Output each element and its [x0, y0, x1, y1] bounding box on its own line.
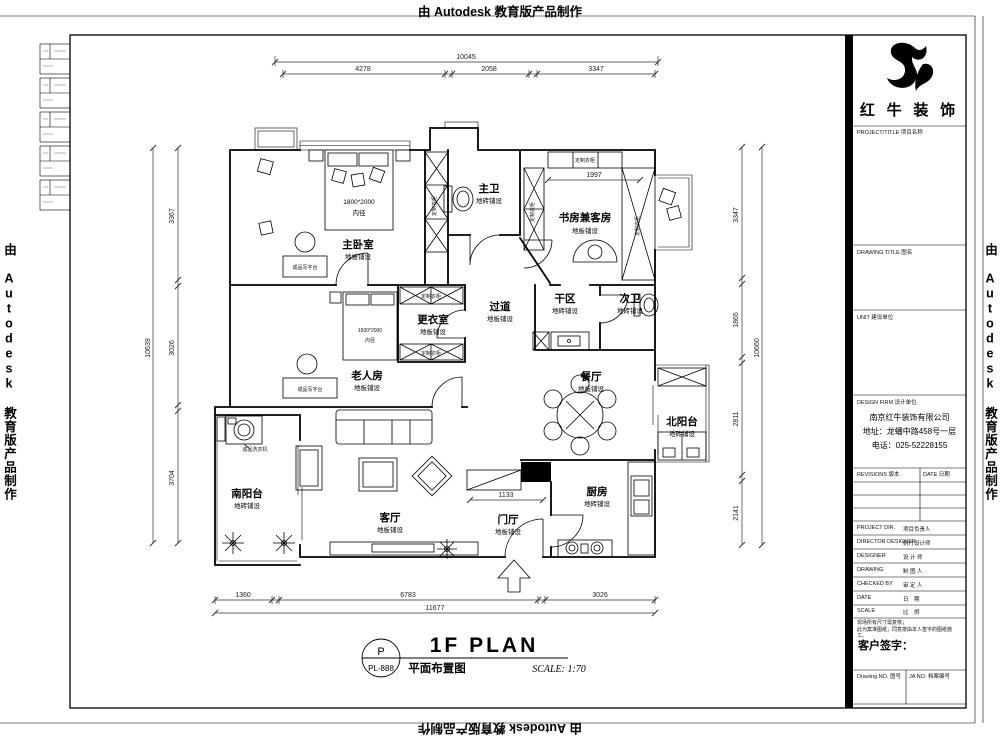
- svg-text:地砖铺设: 地砖铺设: [617, 306, 644, 315]
- room-label-corridor: 过道: [490, 300, 511, 313]
- svg-text:地板铺设: 地板铺设: [377, 525, 404, 534]
- svg-text:1360: 1360: [235, 592, 251, 599]
- room-label-dry-area: 干区: [555, 293, 576, 305]
- svg-text:地板铺设: 地板铺设: [487, 314, 514, 323]
- armchair: [412, 456, 452, 496]
- svg-text:3704: 3704: [169, 470, 176, 486]
- design-firm-label: DESIGN FIRM 设计单位: [857, 398, 917, 406]
- title-stamp: P PL-888 1F PLAN 平面布置图 SCALE: 1:70: [362, 634, 586, 677]
- svg-text:地板铺设: 地板铺设: [420, 327, 447, 336]
- room-label-master-bedroom: 主卧室: [342, 238, 374, 251]
- wardrobe-label: 定制衣柜: [421, 293, 441, 300]
- stamp-letter: P: [377, 646, 384, 658]
- plant: [437, 539, 457, 559]
- company-address: 地址：龙蟠中路458号一层: [853, 425, 966, 439]
- svg-text:6783: 6783: [400, 592, 416, 599]
- svg-text:10639: 10639: [145, 338, 152, 358]
- drawing-title-label: DRAWING TITLE 图名: [857, 248, 912, 256]
- svg-text:1997: 1997: [586, 172, 602, 179]
- svg-text:地板铺设: 地板铺设: [495, 527, 522, 536]
- sheet-linework: 主卧室 地板铺设 主卫 地砖铺设 书房兼客房 地板铺设 次卫 地砖铺设 干区 地…: [0, 0, 1000, 740]
- svg-text:内径: 内径: [365, 337, 375, 344]
- washer-label: 成品洗衣机: [242, 446, 267, 453]
- svg-text:地板铺设: 地板铺设: [345, 252, 372, 261]
- wardrobe-label: 定制衣柜: [529, 202, 536, 222]
- room-label-study: 书房兼客房: [559, 211, 612, 224]
- side-table: [296, 446, 322, 490]
- floor-plan: 主卧室 地板铺设 主卫 地砖铺设 书房兼客房 地板铺设 次卫 地砖铺设 干区 地…: [145, 54, 765, 616]
- plant: [273, 532, 295, 554]
- flue-shaft: [521, 462, 551, 482]
- room-label-dining: 餐厅: [580, 370, 602, 383]
- room-label-master-bath: 主卫: [479, 182, 500, 195]
- wardrobe-label: 定制衣柜: [421, 350, 441, 357]
- master-bed: [309, 150, 410, 230]
- company-info: 南京红牛装饰有限公司 地址：龙蟠中路458号一层 电话：025-52228155: [853, 411, 966, 453]
- staff-row: SCALE比 例: [857, 608, 963, 614]
- svg-text:10660: 10660: [754, 338, 761, 358]
- foyer-cabinet: [467, 470, 521, 490]
- svg-text:2141: 2141: [733, 505, 740, 521]
- client-signature-label: 客户签字：: [858, 637, 913, 653]
- desk-label: 成品写字台: [292, 264, 317, 271]
- kitchen-fixtures: [558, 462, 655, 557]
- svg-text:地砖铺设: 地砖铺设: [552, 306, 579, 315]
- staff-row: PROJECT DIR.项目负责人: [857, 525, 963, 531]
- svg-text:地板铺设: 地板铺设: [354, 383, 381, 392]
- room-label-foyer: 门厅: [498, 513, 519, 526]
- svg-text:地砖铺设: 地砖铺设: [669, 429, 696, 438]
- sheet-title-zh: 平面布置图: [408, 661, 466, 675]
- company-name: 南京红牛装饰有限公司: [853, 411, 966, 425]
- coffee-table: [359, 458, 397, 491]
- svg-text:2811: 2811: [733, 411, 740, 426]
- wardrobe-label: 定制衣柜: [575, 157, 595, 164]
- staff-row: DESIGNER设 计 师: [857, 553, 963, 559]
- svg-text:11677: 11677: [426, 605, 445, 612]
- room-label-second-bath: 次卫: [620, 292, 641, 305]
- staff-row: DATE日 期: [857, 595, 963, 601]
- project-title-label: PROJECT/TITLE 项目名称: [857, 128, 923, 136]
- room-label-dressing-room: 更衣室: [417, 313, 449, 326]
- svg-text:地砖铺设: 地砖铺设: [234, 501, 261, 510]
- svg-text:1133: 1133: [498, 492, 513, 499]
- svg-text:10045: 10045: [456, 54, 476, 61]
- svg-text:3367: 3367: [169, 208, 176, 224]
- elder-bed: [330, 292, 397, 360]
- svg-text:1865: 1865: [733, 312, 740, 328]
- washing-machine: [217, 416, 262, 449]
- stamp-number: PL-888: [368, 664, 394, 673]
- svg-text:地砖铺设: 地砖铺设: [584, 499, 611, 508]
- date-col-label: DATE 日期: [923, 470, 950, 478]
- title-block-bar: [845, 35, 853, 708]
- svg-text:1500*2000: 1500*2000: [358, 328, 382, 334]
- dimensions: 10045 4278 2058 3347 1360 6783 3026 1167…: [145, 54, 765, 616]
- svg-text:地砖铺设: 地砖铺设: [476, 196, 503, 205]
- wardrobe-label: 定制衣柜: [634, 216, 641, 236]
- svg-text:4278: 4278: [355, 66, 371, 73]
- dry-area-vanity: [533, 332, 589, 350]
- company-phone: 电话：025-52228155: [853, 439, 966, 453]
- svg-text:内径: 内径: [353, 208, 367, 217]
- svg-text:3026: 3026: [592, 592, 608, 599]
- entry-arrow: [498, 560, 530, 592]
- border-lines: [0, 16, 983, 723]
- sheet-scale: SCALE: 1:70: [532, 664, 586, 675]
- room-label-south-balcony: 南阳台: [231, 487, 263, 500]
- svg-text:地板铺设: 地板铺设: [572, 226, 599, 235]
- tv-cabinet: [330, 542, 478, 555]
- plant: [222, 532, 244, 554]
- study-desk: [573, 240, 617, 262]
- brand-logo-bull-icon: [887, 43, 933, 91]
- legend-boxes: [40, 44, 70, 210]
- staff-row: CHECKED BY审 定 人: [857, 581, 963, 587]
- staff-row: DRAWING制 图 人: [857, 567, 963, 573]
- brand-name: 红 牛 装 饰: [853, 99, 966, 120]
- room-label-living: 客厅: [379, 511, 401, 524]
- room-label-kitchen: 厨房: [587, 485, 608, 498]
- drawing-sheet: 由 Autodesk 教育版产品制作 由 Autodesk 教育版产品制作 由 …: [0, 0, 1000, 740]
- revisions-label: REVISIONS 版本: [857, 470, 899, 478]
- svg-text:3347: 3347: [588, 66, 604, 73]
- svg-text:2058: 2058: [481, 66, 497, 73]
- windows: [217, 122, 709, 561]
- drawing-no-label: Drawing NO. 图号: [857, 672, 901, 680]
- unit-label: UNIT 建设单位: [857, 313, 893, 321]
- sofa: [336, 410, 432, 444]
- sheet-title-en: 1F PLAN: [430, 634, 539, 657]
- desk-label: 成品写字台: [297, 386, 322, 393]
- staff-row: DIRECTOR DESIGNER执行设计师: [857, 539, 963, 545]
- wardrobe-label: 定制衣柜: [431, 196, 438, 216]
- svg-text:地板铺设: 地板铺设: [578, 384, 605, 393]
- room-label-elder-room: 老人房: [350, 369, 383, 382]
- ac-units: [257, 159, 681, 235]
- file-no-label: JA NO. 档案编号: [909, 672, 950, 680]
- room-label-north-balcony: 北阳台: [666, 415, 698, 428]
- svg-text:1800*2000: 1800*2000: [343, 199, 375, 206]
- svg-text:3026: 3026: [169, 340, 176, 356]
- svg-text:3347: 3347: [733, 207, 740, 223]
